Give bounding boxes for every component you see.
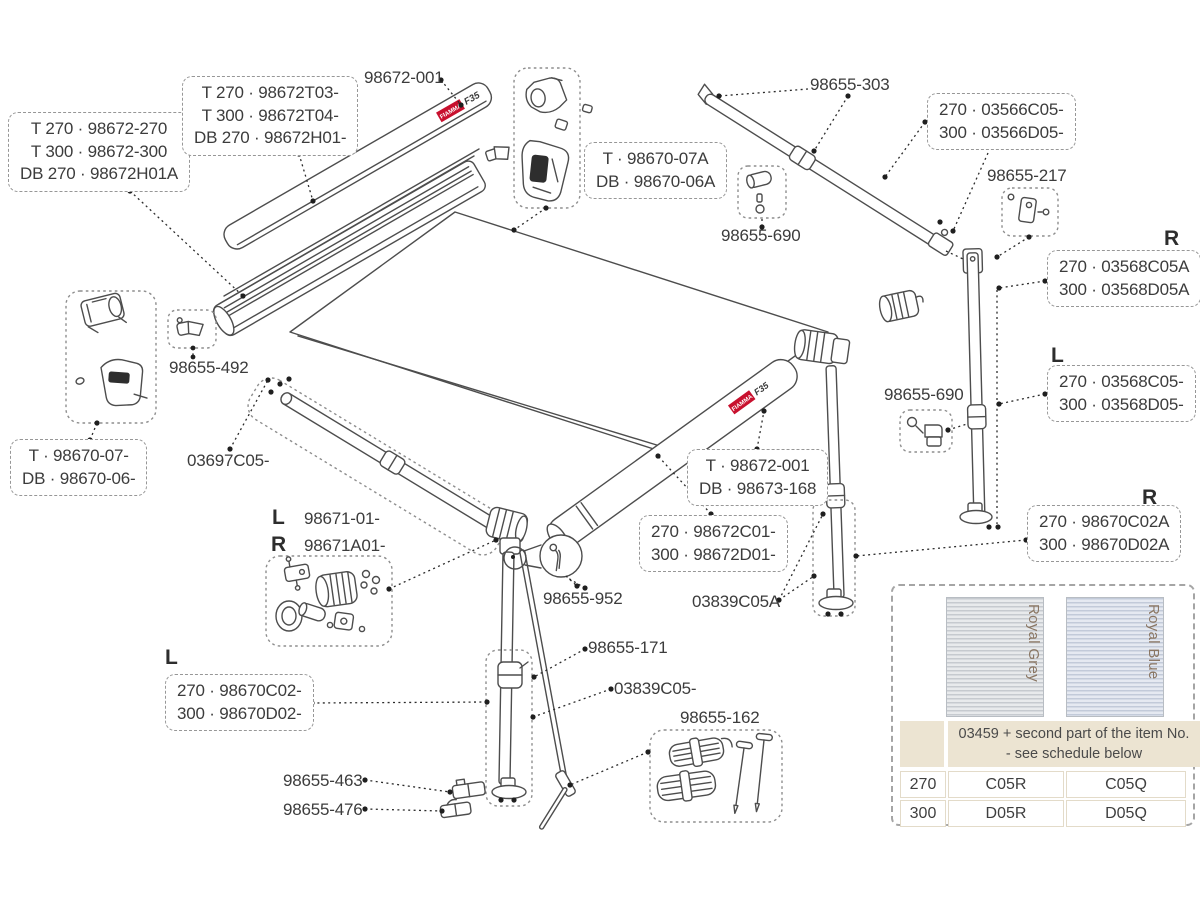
label-spigot-a: 03839C05A [692,592,780,612]
fabric-color-table: Royal Grey Royal Blue 03459 + second par… [891,584,1195,826]
heading-left-arm: L [272,506,285,530]
label-box-leg-tube-left: 270 · 03568C05- 300 · 03568D05- [1047,365,1196,422]
label-arm-tube: 03697C05- [187,451,269,471]
label-box-end-caps: T · 98670-07A DB · 98670-06A [584,142,727,199]
label-box-leg-right: 270 · 98670C02A 300 · 98670D02A [1027,505,1181,562]
winch-knob [878,288,926,323]
right-rear-leg [960,249,992,524]
table-row-300-blue: D05Q [1066,800,1186,827]
heading-right-arm: R [271,533,286,557]
peg-icon [727,741,753,815]
label-box-lead-rail: T · 98672-001 DB · 98673-168 [687,449,828,506]
parts-diagram-page: FIAMMA F35 FIAMMA F35 [0,0,1200,900]
swatch-label-royal-blue: Royal Blue [1145,604,1162,680]
label-box-rafter-tube: 270 · 03566C05- 300 · 03566D05- [927,93,1076,150]
label-pin-952: 98655-952 [543,589,623,609]
clamp-492-group [168,310,216,348]
table-header-cell: 03459 + second part of the item No. - se… [948,721,1200,767]
table-row-270-grey: C05R [948,771,1064,798]
label-box-case-profile: T 270 · 98672T03- T 300 · 98672T04- DB 2… [182,76,358,156]
foot-clamp-a [451,777,485,799]
table-row-270-size: 270 [900,771,946,798]
swatch-label-royal-grey: Royal Grey [1025,604,1042,682]
knuckle-parts-kit [266,554,392,646]
foot-clamp-b [439,797,471,818]
left-leg [486,552,532,806]
heading-left-leg: L [165,646,178,670]
knob-group-right [900,410,952,452]
swatch-royal-grey: Royal Grey [946,597,1044,717]
heading-right-top: R [1164,227,1179,251]
label-box-leg-left: 270 · 98670C02- 300 · 98670D02- [165,674,314,731]
label-box-lead-bar: 270 · 98672C01- 300 · 98672D01- [639,515,788,572]
case-end-caps-group [514,68,580,208]
label-knuckle-right: 98671A01- [304,536,385,556]
label-tie-down-kit: 98655-162 [680,708,760,728]
label-knob-top: 98655-690 [721,226,801,246]
label-bracket-217: 98655-217 [987,166,1067,186]
table-corner-cell [900,721,944,767]
tie-down-kit [650,730,782,822]
label-clamp-171: 98655-171 [588,638,668,658]
wall-brackets-group [66,291,156,423]
table-row-300-size: 300 [900,800,946,827]
label-case-top: 98672-001 [364,68,444,88]
label-box-leg-tube-right: 270 · 03568C05A 300 · 03568D05A [1047,250,1200,307]
left-knuckle [485,506,530,554]
label-knob-right: 98655-690 [884,385,964,405]
label-clamp-492: 98655-492 [169,358,249,378]
label-foot-476: 98655-476 [283,800,363,820]
label-box-end-caps-lower: T · 98670-07- DB · 98670-06- [10,439,147,496]
case-clamp-small [485,142,513,165]
swatch-royal-blue: Royal Blue [1066,597,1164,717]
label-spigot: 03839C05- [614,679,696,699]
bracket-217-group [1002,188,1058,236]
table-row-300-grey: D05R [948,800,1064,827]
knob-group-top [738,166,786,218]
label-box-case-fabric: T 270 · 98672-270 T 300 · 98672-300 DB 2… [8,112,190,192]
label-foot-463: 98655-463 [283,771,363,791]
right-knuckle [793,329,851,366]
label-rafter-arm: 98655-303 [810,75,890,95]
table-row-270-blue: C05Q [1066,771,1186,798]
label-knuckle-left: 98671-01- [304,509,380,529]
